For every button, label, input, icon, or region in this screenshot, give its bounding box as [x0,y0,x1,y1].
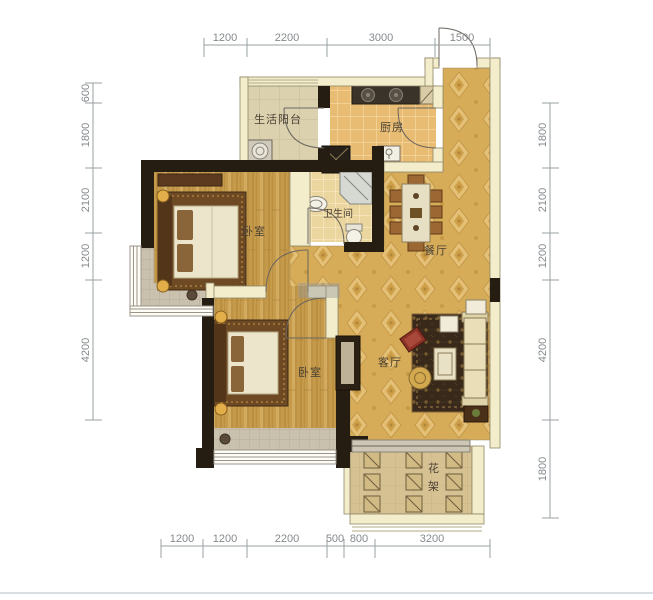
living-sliding-door [352,440,470,452]
washing-machine-icon [248,140,272,163]
tv-stand-icon [336,336,360,390]
label-dining: 餐厅 [424,243,448,257]
label-flower-rack-2: 架 [428,480,440,493]
stove-icon [352,86,420,104]
label-living: 客厅 [378,355,402,369]
wall-balcony-west [240,77,248,165]
wall-flower-east [472,446,484,514]
dim-right-4: 1800 [537,457,549,481]
bay-window-south [130,306,213,316]
end-table-icon [440,316,458,332]
dim-right-0: 1800 [537,123,549,147]
wall-east-segment [490,278,500,302]
wall-balcony-kitchen-bottom [318,148,330,162]
dim-bottom-4: 800 [350,533,368,545]
dim-left-0: 600 [80,84,92,102]
dim-left-1: 1800 [80,123,92,147]
dim-bottom-0: 1200 [170,533,194,545]
wall-east [490,58,500,448]
bed-bottom-icon [214,311,288,415]
dim-bottom-2: 2200 [275,533,299,545]
dimension-right [542,103,559,518]
wall-bedroom-bottom-west [202,298,214,452]
label-flower-rack-1: 花 [428,462,440,475]
bedroom-bottom-window [214,450,336,464]
dim-bottom-3: 500 [326,533,344,545]
dim-right-3: 4200 [537,338,549,362]
sofa-icon [462,300,488,422]
wall-kitchen-south-east [384,162,443,172]
dim-left-3: 1200 [80,244,92,268]
wall-bedroom-top-west [141,160,154,248]
label-kitchen: 厨房 [380,121,404,134]
label-bedroom-bottom: 卧室 [298,365,322,379]
bed-top-icon [157,190,246,292]
label-bathroom: 卫生间 [323,207,353,220]
coffee-table-icon [434,348,456,380]
wall-bathroom-east [372,146,384,252]
wall-balcony-kitchen-top [318,86,330,108]
dresser-icon [158,174,222,186]
wall-bathroom-south [344,242,384,252]
dim-left-4: 4200 [80,338,92,362]
label-laundry-balcony: 生活阳台 [254,112,302,126]
dim-top-3: 1500 [450,32,474,44]
watermark [298,283,340,298]
sill-plant [220,434,230,444]
wall-entry-connector [425,58,433,86]
dim-bottom-5: 3200 [420,533,444,545]
dim-top-1: 2200 [275,32,299,44]
wall-kitchen-door-jamb-top [433,86,443,108]
dim-right-2: 1200 [537,244,549,268]
dim-right-1: 2100 [537,188,549,212]
shower-icon [340,172,372,204]
wall-bedroom-bottom-sw [196,448,214,468]
dim-top-0: 1200 [213,32,237,44]
floor-plan-page: 生活阳台 厨房 卧室 卫生间 餐厅 卧室 客厅 花 架 [0,0,653,600]
flower-rack-sill [352,527,482,531]
wall-north [240,77,433,86]
ottoman-icon [409,367,431,389]
wall-bedroom-top-east [290,162,310,246]
dimension-top [204,38,490,57]
floor-plan-drawing: 生活阳台 厨房 卧室 卫生间 餐厅 卧室 客厅 花 架 [0,0,653,600]
dim-left-2: 2100 [80,188,92,212]
dim-bottom-1: 1200 [213,533,237,545]
flower-rack-planters [364,452,462,512]
bedroom-bottom-sill-floor [214,428,336,450]
wall-flower-south [350,514,484,524]
toilet-icon [346,224,362,245]
label-bedroom-top: 卧室 [242,224,266,238]
dim-top-2: 3000 [369,32,393,44]
bay-plant [187,290,197,300]
wall-bedroom-top-north [141,160,384,172]
wall-bedroom-top-south [213,286,266,298]
